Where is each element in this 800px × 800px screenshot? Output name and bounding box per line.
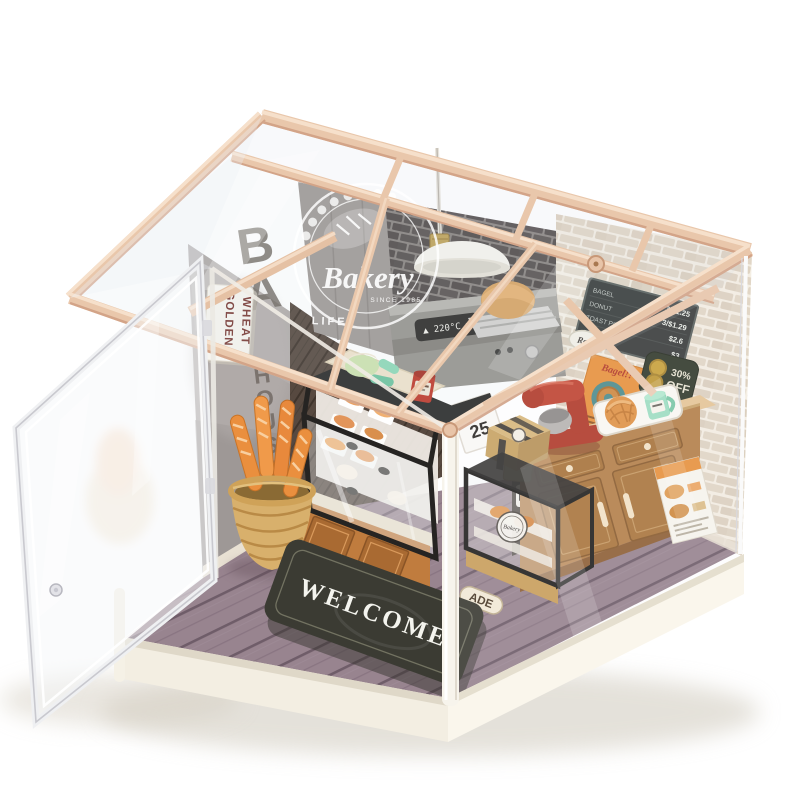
door-hinge (205, 478, 215, 494)
door-knob (50, 584, 62, 596)
decal-life: LIFE (312, 315, 348, 328)
door-hinge (202, 320, 212, 336)
decal-since: SINCE 1985 (370, 297, 421, 304)
miniature-bakery-photo: BA HOUSE BAGEL 3/$1.25 DO (0, 0, 800, 800)
product-photo-stage: BA HOUSE BAGEL 3/$1.25 DO (0, 0, 800, 800)
